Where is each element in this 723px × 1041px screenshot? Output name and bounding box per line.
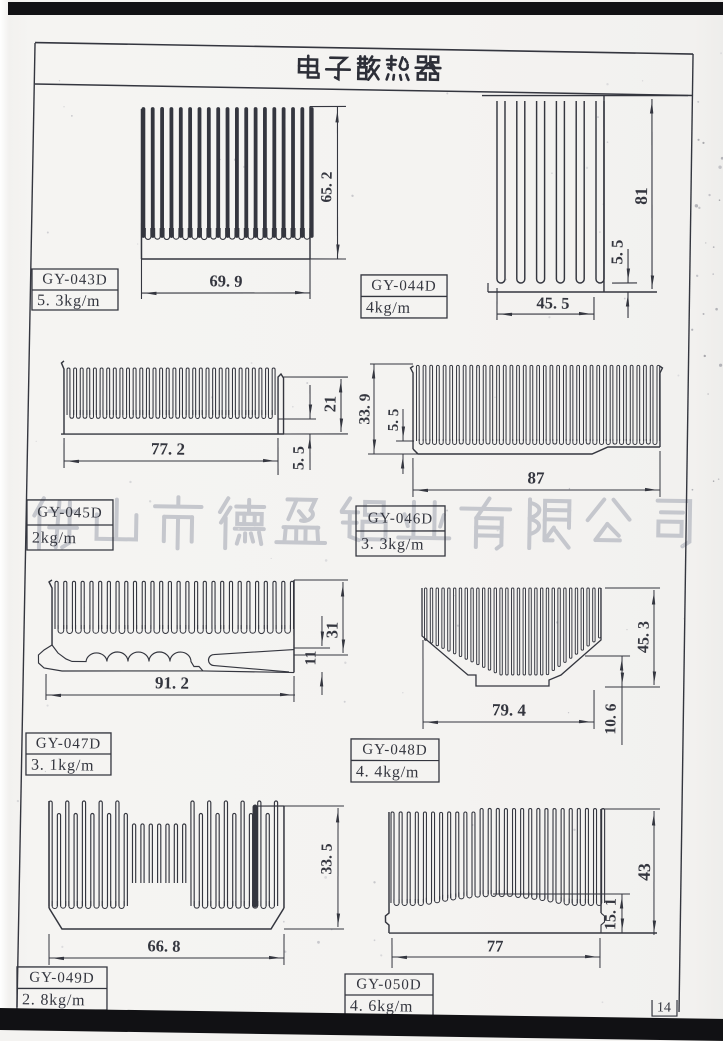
svg-text:GY-044D: GY-044D [371,278,437,295]
svg-text:33. 9: 33. 9 [356,393,374,425]
svg-text:4kg/m: 4kg/m [366,299,411,317]
svg-text:5. 5: 5. 5 [607,239,626,264]
svg-text:GY-043D: GY-043D [42,271,108,288]
svg-text:66. 8: 66. 8 [147,936,180,956]
svg-text:GY-050D: GY-050D [356,976,422,993]
svg-text:3. 1kg/m: 3. 1kg/m [31,756,95,774]
svg-text:91. 2: 91. 2 [155,673,189,693]
svg-text:5. 3kg/m: 5. 3kg/m [37,292,101,310]
svg-text:15. 1: 15. 1 [602,898,620,930]
svg-text:GY-045D: GY-045D [37,504,103,521]
svg-text:81: 81 [631,187,651,205]
svg-text:65. 2: 65. 2 [318,171,336,203]
svg-text:GY-047D: GY-047D [36,735,102,752]
svg-text:GY-048D: GY-048D [362,742,428,759]
svg-text:4. 4kg/m: 4. 4kg/m [356,763,420,781]
svg-text:5. 5: 5. 5 [386,409,402,432]
svg-text:GY-049D: GY-049D [29,970,95,987]
svg-text:87: 87 [527,468,545,487]
svg-text:77. 2: 77. 2 [151,439,185,459]
svg-text:45. 3: 45. 3 [635,621,653,653]
svg-text:2. 8kg/m: 2. 8kg/m [22,991,86,1009]
svg-text:2kg/m: 2kg/m [32,529,77,547]
svg-text:31: 31 [322,622,341,639]
svg-text:21: 21 [320,396,339,413]
svg-text:45. 5: 45. 5 [536,293,569,313]
svg-text:GY-046D: GY-046D [368,510,434,527]
svg-text:33. 5: 33. 5 [318,843,336,875]
svg-text:79. 4: 79. 4 [492,700,527,720]
svg-text:69. 9: 69. 9 [209,271,242,291]
svg-text:77: 77 [487,936,504,955]
svg-text:3. 3kg/m: 3. 3kg/m [361,535,425,553]
svg-text:10. 6: 10. 6 [602,703,620,735]
svg-text:5. 5: 5. 5 [290,446,307,470]
svg-text:14: 14 [657,1000,671,1015]
svg-text:11: 11 [302,651,319,666]
svg-text:43: 43 [634,863,654,881]
